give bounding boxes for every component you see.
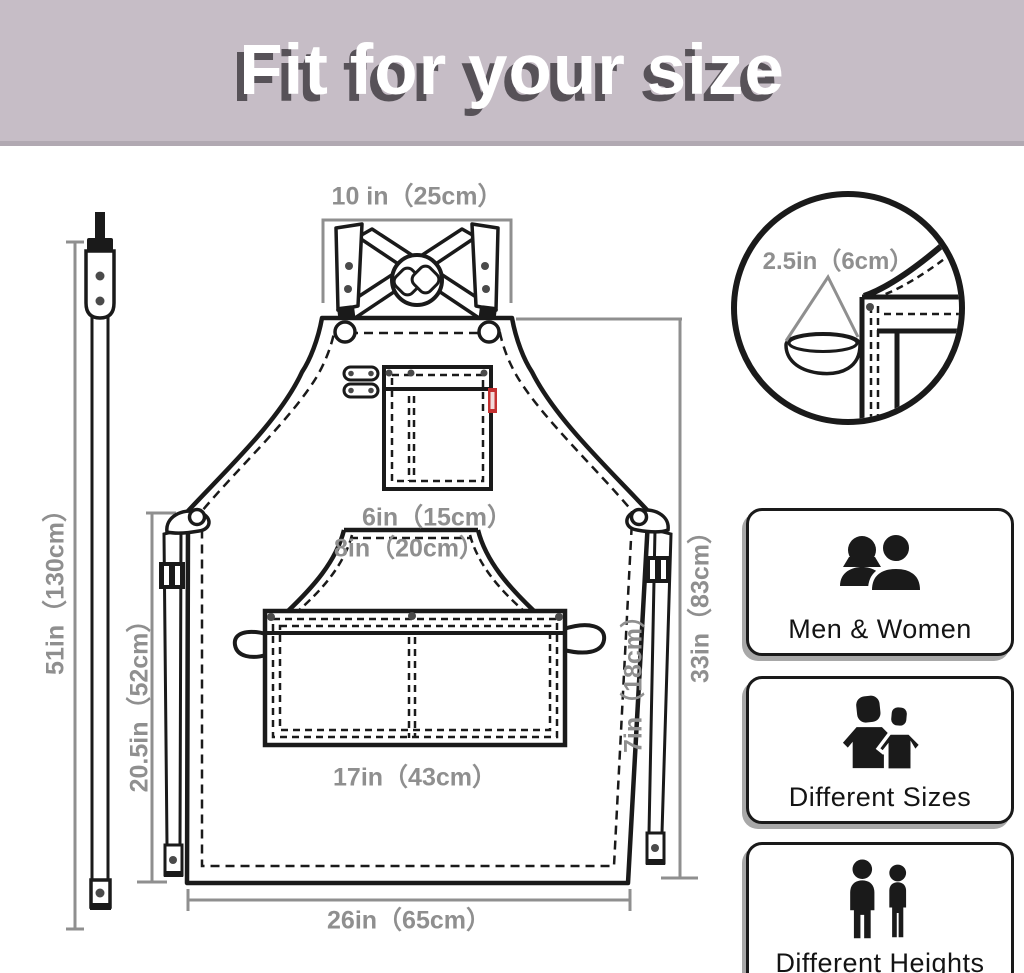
apron-size-infographic: Fit for your size (0, 0, 1024, 973)
feature-label: Different Sizes (789, 783, 972, 813)
dim-loop-detail: 2.5in（6cm） (763, 250, 914, 274)
different-sizes-icon (830, 685, 930, 783)
feature-label: Men & Women (788, 615, 972, 645)
waist-pocket (235, 611, 604, 745)
red-tag (488, 388, 497, 413)
dim-waist-pocket-width: 17in（43cm） (333, 766, 497, 791)
neck-strap-drawing (86, 212, 114, 910)
men-women-icon (830, 517, 930, 615)
different-heights-icon (830, 851, 930, 949)
apron-diagram-linework (0, 0, 1024, 973)
dim-waist-pocket-height: 7in（18cm） (622, 603, 647, 753)
loop-detail-circle (734, 194, 966, 424)
dim-chest-pocket-width: 6in（15cm） (362, 506, 512, 531)
dim-lower-length: 20.5in（52cm） (128, 608, 153, 793)
feature-card-men-women: Men & Women (746, 508, 1014, 656)
dim-top-width: 10 in（25cm） (332, 185, 503, 210)
dim-bottom-width: 26in（65cm） (327, 909, 491, 934)
dim-strap-length: 51in（130cm） (44, 497, 69, 675)
dim-body-length: 33in（83cm） (689, 519, 714, 683)
dim-chest-width: 8in（20cm） (334, 537, 484, 562)
feature-card-different-heights: Different Heights (746, 842, 1014, 973)
feature-card-different-sizes: Different Sizes (746, 676, 1014, 824)
cross-straps-drawing (336, 224, 498, 320)
feature-label: Different Heights (775, 949, 984, 973)
